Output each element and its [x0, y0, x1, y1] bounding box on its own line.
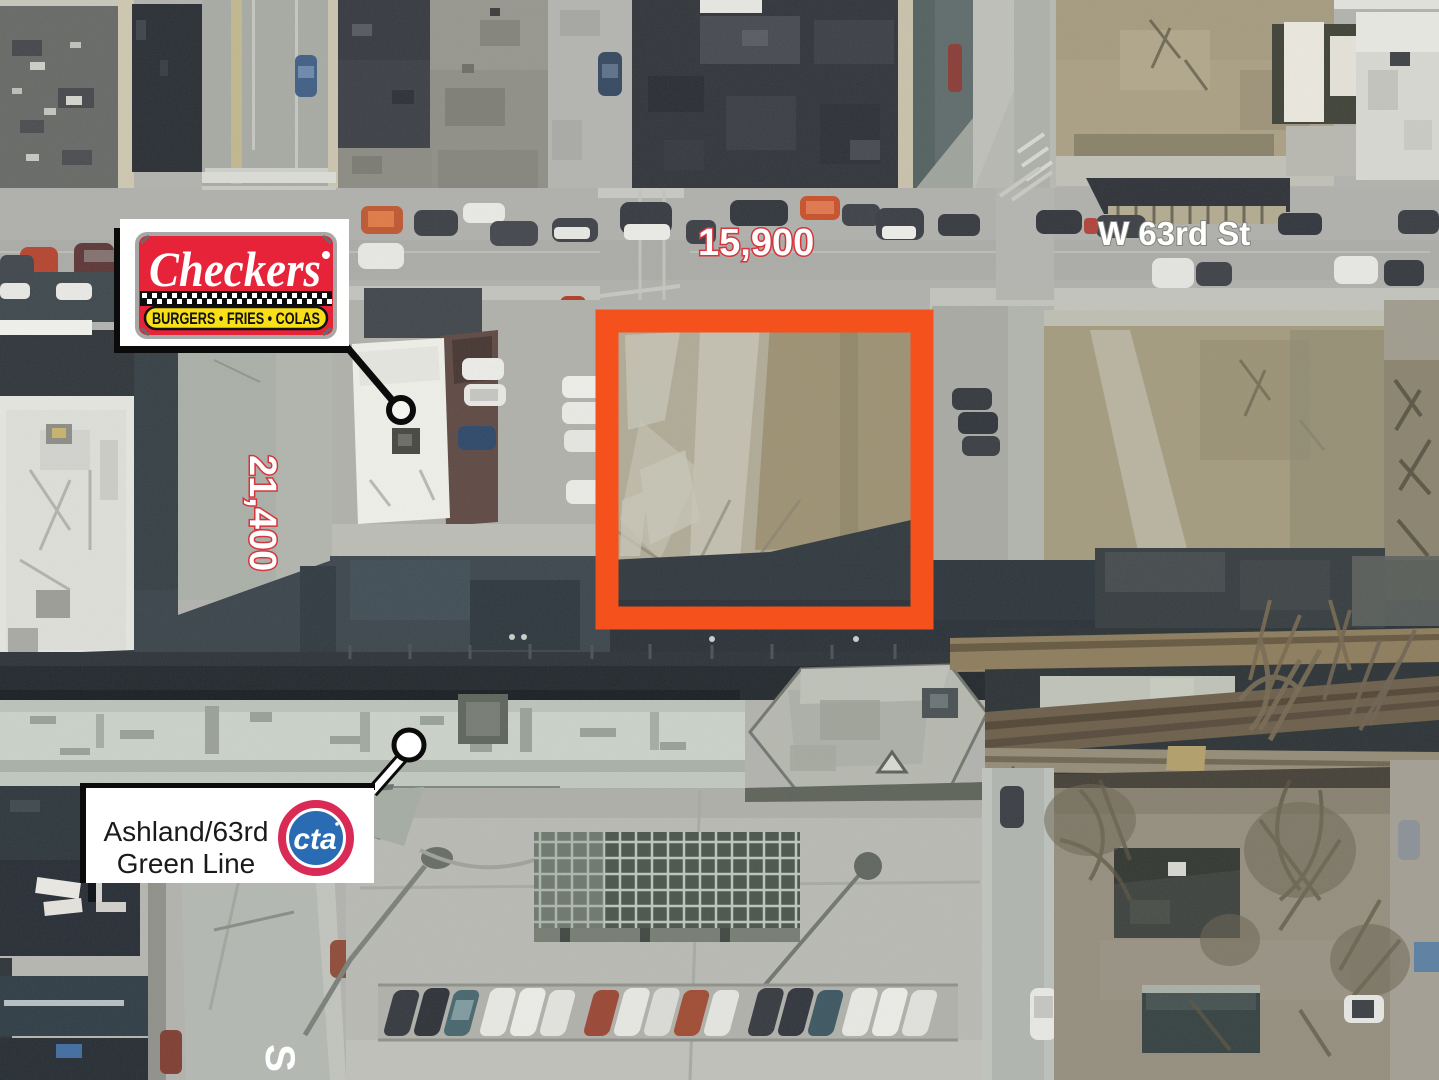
svg-text:Ashland/63rd: Ashland/63rd — [103, 816, 268, 847]
svg-text:15,900: 15,900 — [698, 222, 814, 264]
svg-text:BURGERS • FRIES • COLAS: BURGERS • FRIES • COLAS — [152, 309, 320, 328]
svg-text:Checkers: Checkers — [149, 241, 321, 297]
svg-text:21,400: 21,400 — [241, 455, 283, 571]
svg-text:W 63rd St: W 63rd St — [1098, 215, 1250, 252]
svg-text:Green Line: Green Line — [117, 848, 256, 879]
svg-text:cta: cta — [293, 823, 336, 856]
svg-text:S: S — [257, 1044, 304, 1072]
